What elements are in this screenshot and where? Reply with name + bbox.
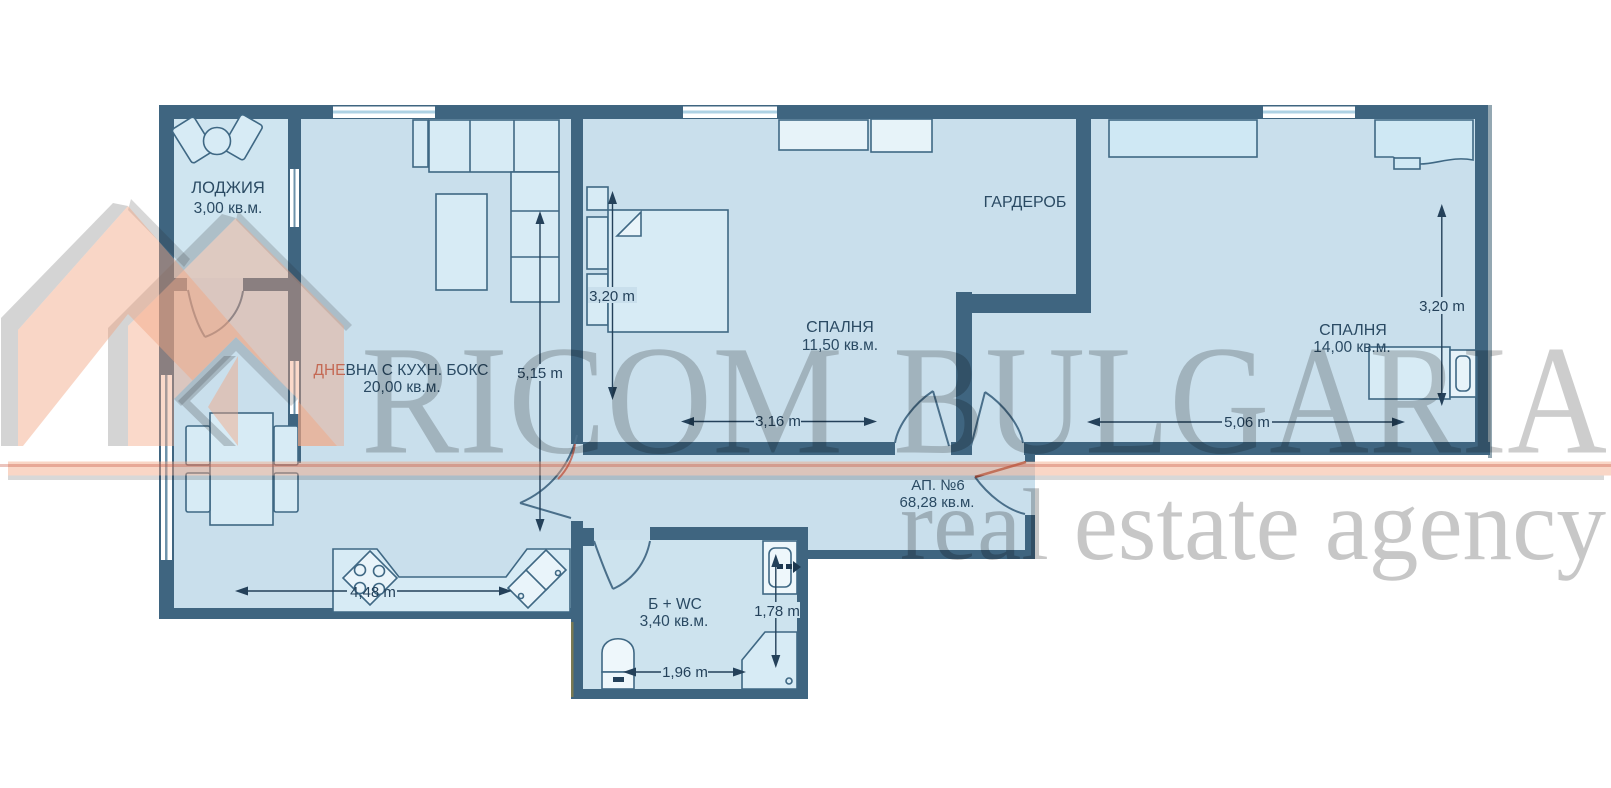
svg-text:3,00 кв.м.: 3,00 кв.м.	[194, 200, 263, 217]
svg-text:ЛОДЖИЯ: ЛОДЖИЯ	[191, 179, 265, 197]
svg-text:Б + WC: Б + WC	[648, 596, 702, 613]
svg-text:real estate agency: real estate agency	[900, 469, 1606, 582]
svg-text:1,78 m: 1,78 m	[754, 603, 800, 620]
svg-text:RICOM: RICOM	[361, 314, 843, 487]
svg-text:1,96 m: 1,96 m	[662, 664, 708, 681]
svg-text:ГАРДЕРОБ: ГАРДЕРОБ	[984, 194, 1067, 211]
svg-text:BULGARIA: BULGARIA	[893, 314, 1607, 487]
svg-text:4,48 m: 4,48 m	[350, 584, 396, 601]
svg-text:3,20 m: 3,20 m	[1419, 298, 1465, 315]
svg-text:3,20 m: 3,20 m	[589, 288, 635, 305]
svg-text:3,40 кв.м.: 3,40 кв.м.	[640, 613, 709, 630]
